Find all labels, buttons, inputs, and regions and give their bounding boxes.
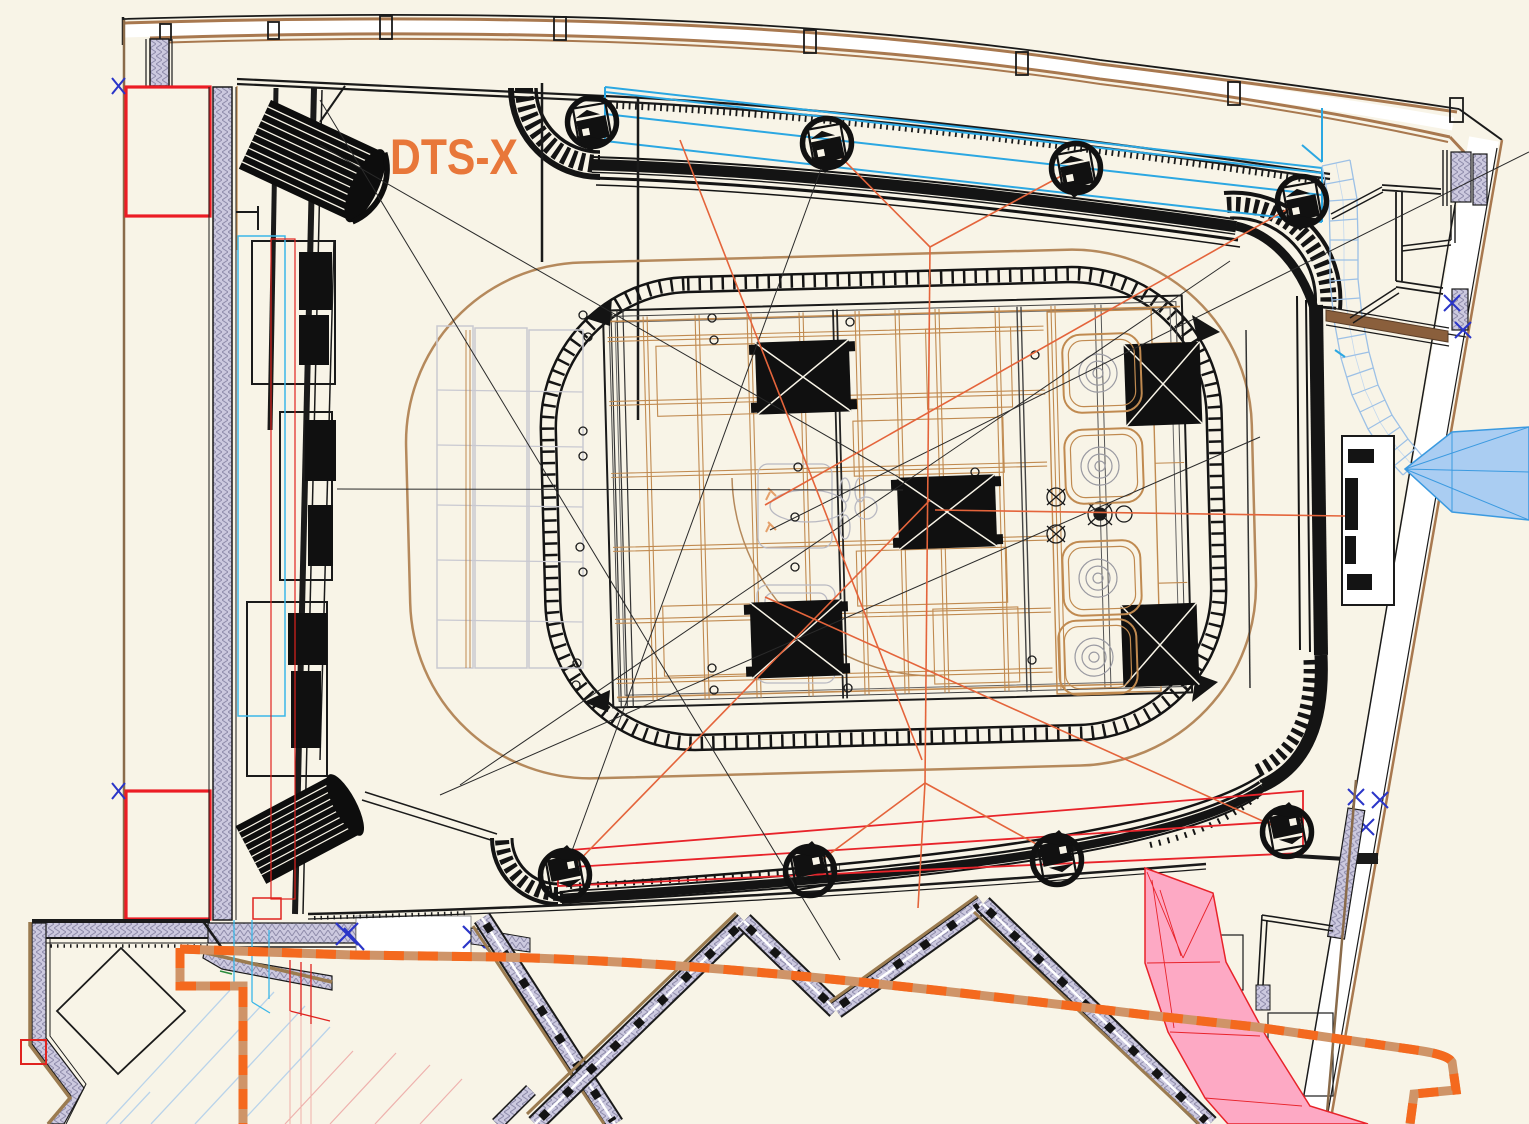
svg-text:DTS-X: DTS-X <box>390 129 518 185</box>
